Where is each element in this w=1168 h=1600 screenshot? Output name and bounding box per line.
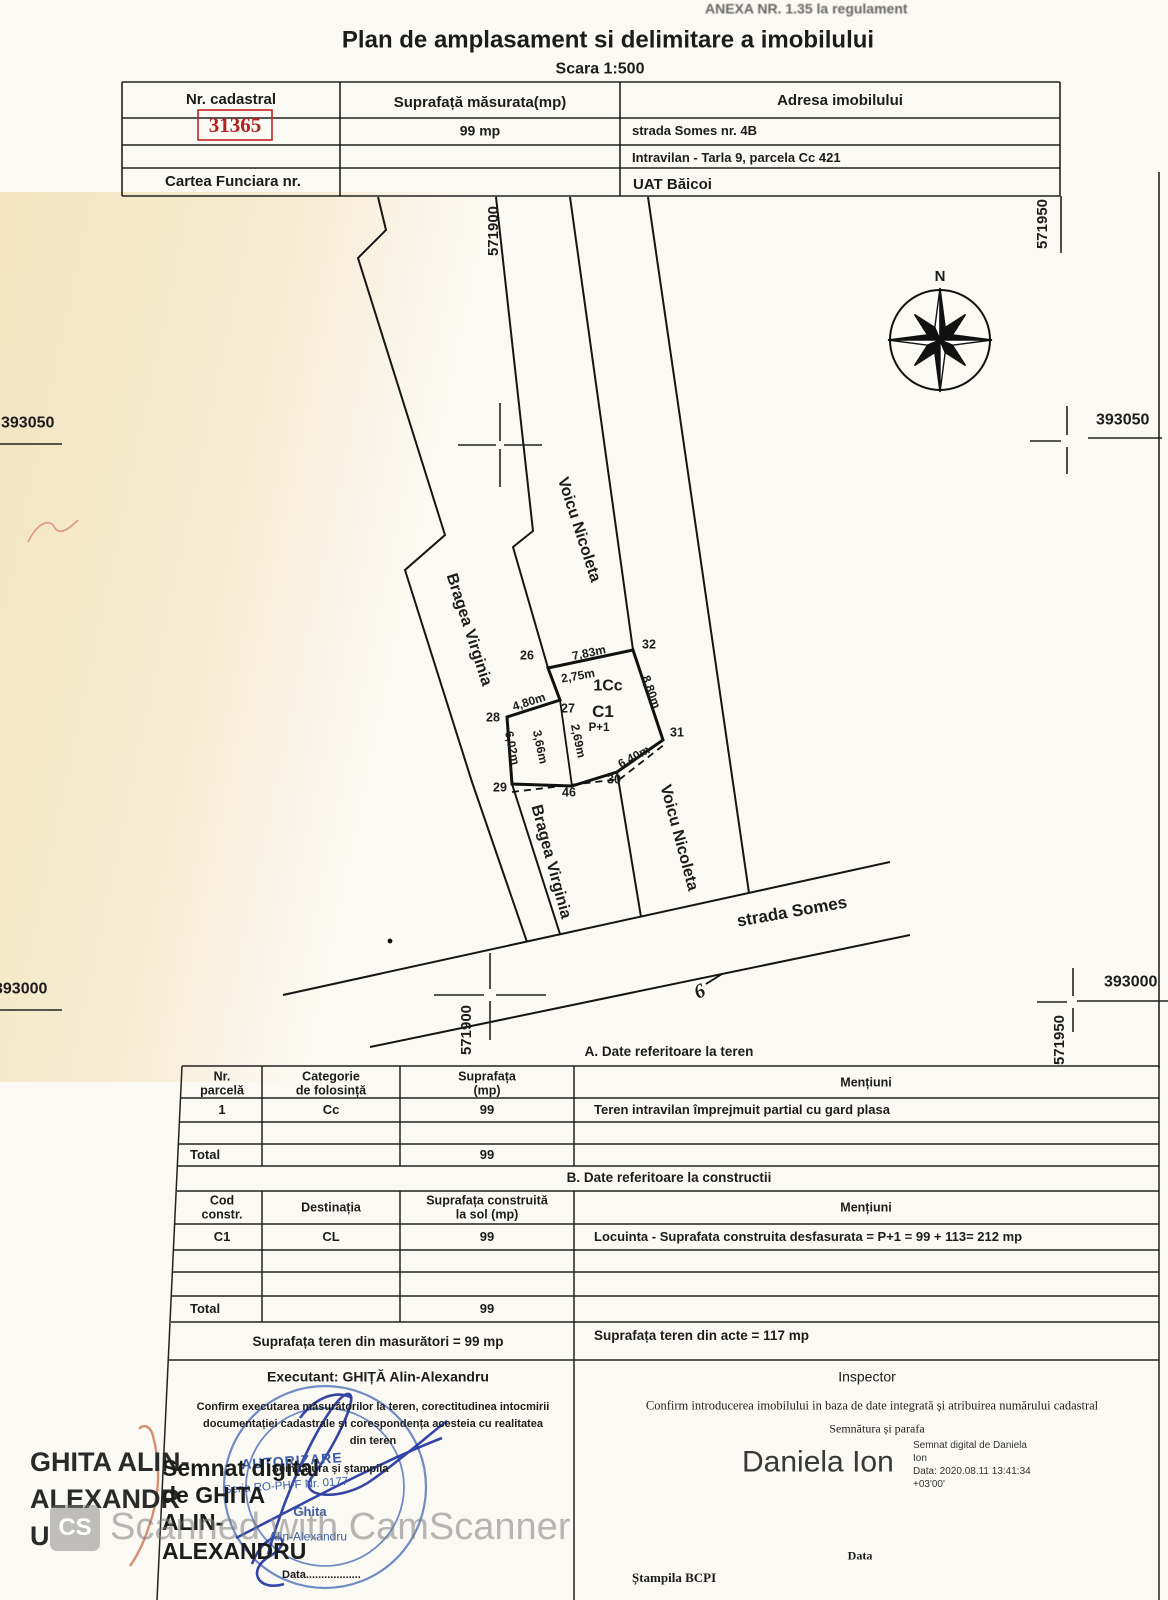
cadastral-number: 31365: [209, 114, 262, 136]
plan-linework: [0, 0, 1168, 1600]
address-line1: strada Somes nr. 4B: [632, 124, 757, 138]
ghita-overlay-l3: U: [30, 1522, 50, 1550]
inspector-confirm: Confirm introducerea imobilului in baza …: [646, 1399, 1098, 1412]
table-a-h1a: Nr.: [214, 1070, 231, 1083]
inspector-digital-l4: +03'00': [913, 1480, 945, 1491]
grid-label-571900-top: 571900: [486, 206, 502, 256]
cadastral-plan-document: ANEXA NR. 1.35 la regulament Plan de amp…: [0, 0, 1168, 1600]
inspector-digital-l3: Data: 2020.08.11 13:41:34: [913, 1467, 1031, 1478]
table-a-h2b: de folosință: [296, 1084, 366, 1097]
table-a-row-mentiuni: Teren intravilan împrejmuit partial cu g…: [594, 1103, 890, 1117]
annex-note: ANEXA NR. 1.35 la regulament: [705, 2, 908, 17]
grid-label-393050-left: 393050: [1, 416, 54, 433]
table-a-h3a: Suprafața: [458, 1070, 516, 1083]
inspector-digital-l2: Ion: [913, 1454, 927, 1465]
table-b-row-sup: 99: [480, 1230, 494, 1244]
parcel-boundaries: [283, 172, 1159, 1068]
camscanner-logo: CS: [50, 1505, 100, 1551]
section-b-title: B. Date referitoare la constructii: [567, 1171, 772, 1185]
table-b-total-label: Total: [190, 1302, 220, 1316]
grid-label-393000-left: 393000: [0, 982, 47, 999]
executant-label: Executant: GHIȚĂ Alin-Alexandru: [267, 1370, 489, 1385]
area-acts: Suprafața teren din acte = 117 mp: [594, 1329, 809, 1343]
page-title: Plan de amplasament si delimitare a imob…: [342, 27, 874, 52]
table-b-row-cod: C1: [214, 1230, 231, 1244]
executant-date-label: Data..................: [282, 1570, 361, 1582]
table-b-h3a: Suprafața construită: [426, 1194, 548, 1207]
executant-confirm-l3: din teren: [350, 1436, 396, 1448]
table-b-row-dest: CL: [322, 1230, 339, 1244]
point-27: 27: [561, 702, 575, 715]
inspector-date-label: Data: [848, 1550, 873, 1563]
uat-value: UAT Băicoi: [633, 177, 712, 193]
table-b-total-sup: 99: [480, 1302, 494, 1316]
measured-area-value: 99 mp: [460, 124, 500, 139]
grid-label-571950-top: 571950: [1035, 199, 1051, 249]
point-46: 46: [562, 786, 576, 799]
adresa-header: Adresa imobilului: [777, 93, 903, 109]
table-a-h3b: (mp): [473, 1084, 500, 1097]
point-26: 26: [520, 649, 534, 662]
table-b-h1b: constr.: [202, 1208, 243, 1221]
point-31: 31: [670, 726, 684, 739]
cartea-funciara-label: Cartea Funciara nr.: [165, 174, 301, 190]
point-30: 30: [607, 773, 621, 786]
section-a-title: A. Date referitoare la teren: [585, 1045, 754, 1059]
table-a-h2a: Categorie: [302, 1070, 360, 1083]
inspector-digital-l1: Semnat digital de Daniela: [913, 1441, 1027, 1452]
inspector-stamp-label: Ștampila BCPI: [632, 1571, 716, 1585]
table-a-total-sup: 99: [480, 1148, 494, 1162]
compass-rose-icon: [888, 288, 992, 392]
grid-label-571950-bottom: 571950: [1052, 1015, 1068, 1065]
table-a-row-nr: 1: [218, 1103, 225, 1117]
table-a-h4: Mențiuni: [840, 1076, 891, 1089]
point-32: 32: [642, 638, 656, 651]
inspector-label: Inspector: [838, 1370, 896, 1385]
red-pen-mark: [28, 520, 78, 542]
camscanner-watermark-text: Scanned with CamScanner: [110, 1508, 570, 1548]
inspector-signer-name: Daniela Ion: [742, 1446, 894, 1478]
table-b-h3b: la sol (mp): [456, 1208, 519, 1221]
nr-cadastral-header: Nr. cadastral: [186, 92, 276, 108]
executant-confirm-l1: Confirm executarea măsurătorilor la tere…: [197, 1402, 550, 1414]
table-b-h2: Destinația: [301, 1201, 361, 1214]
parcel-label: 1Cc: [593, 679, 622, 696]
table-a-row-sup: 99: [480, 1103, 494, 1117]
suprafata-header: Suprafață măsurata(mp): [394, 95, 567, 111]
camscanner-logo-text: CS: [58, 1515, 91, 1540]
grid-label-393050-right: 393050: [1096, 413, 1149, 430]
table-a-row-cat: Cc: [323, 1103, 340, 1117]
compass-north-label: N: [935, 269, 946, 285]
survey-dot: [388, 939, 393, 944]
address-line2: Intravilan - Tarla 9, parcela Cc 421: [632, 151, 841, 165]
table-b-row-mentiuni: Locuinta - Suprafata construita desfasur…: [594, 1230, 1022, 1244]
table-a-total-label: Total: [190, 1148, 220, 1162]
grid-label-571900-bottom: 571900: [459, 1005, 475, 1055]
point-29: 29: [493, 781, 507, 794]
grid-label-393000-right: 393000: [1104, 975, 1157, 992]
digital-overlay-l1: Semnat digital: [162, 1456, 319, 1480]
inspector-sign-label: Semnătura și parafa: [829, 1423, 924, 1436]
point-28: 28: [486, 711, 500, 724]
table-b-h1a: Cod: [210, 1194, 234, 1207]
scale-label: Scara 1:500: [556, 62, 645, 79]
table-a-h1b: parcelă: [200, 1084, 244, 1097]
building-regime: P+1: [589, 722, 610, 734]
digital-overlay-l2: de GHITA: [162, 1483, 265, 1507]
grid-cross-markers: [0, 196, 1168, 1040]
table-b-h4: Mențiuni: [840, 1201, 891, 1214]
area-measured: Suprafața teren din masurători = 99 mp: [253, 1335, 504, 1349]
executant-confirm-l2: documentației cadastrale și corespondenț…: [203, 1419, 543, 1431]
building-label: C1: [592, 703, 614, 721]
